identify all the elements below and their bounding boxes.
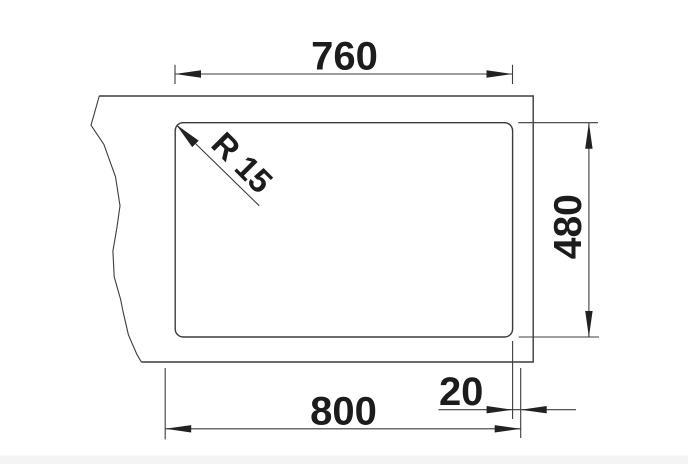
- svg-text:20: 20: [439, 370, 484, 414]
- svg-text:800: 800: [310, 390, 377, 434]
- svg-text:760: 760: [311, 34, 378, 78]
- svg-text:480: 480: [547, 194, 590, 259]
